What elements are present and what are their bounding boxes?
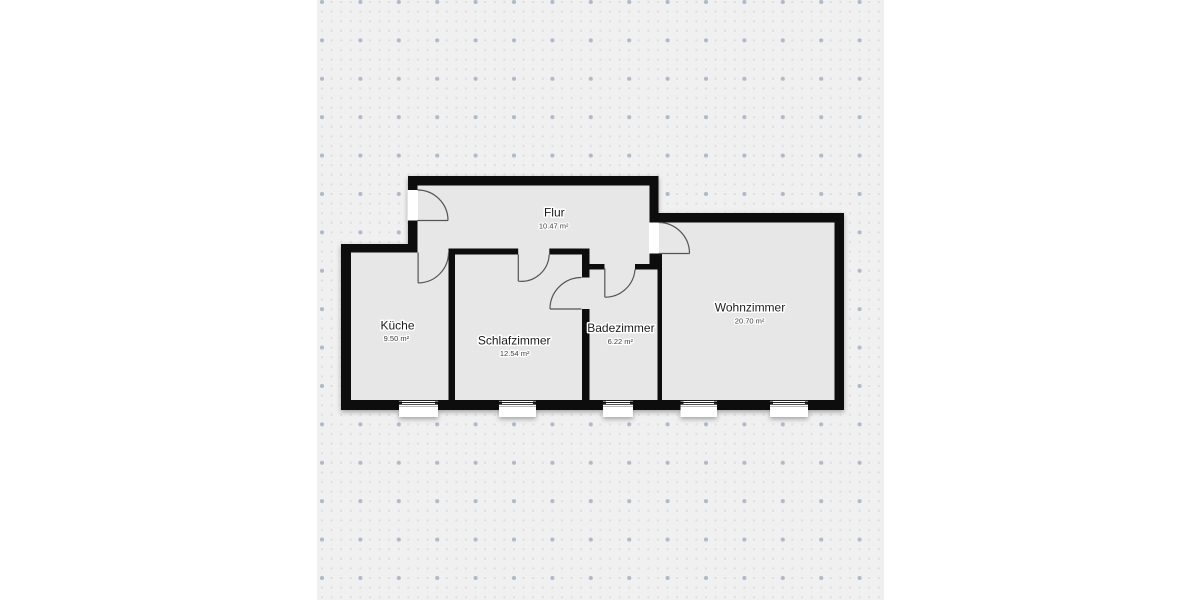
svg-text:9.50 m²: 9.50 m² — [384, 334, 410, 343]
svg-text:20.70 m²: 20.70 m² — [735, 316, 765, 325]
svg-text:Wohnzimmer: Wohnzimmer — [715, 300, 785, 314]
svg-text:Schlafzimmer: Schlafzimmer — [478, 334, 551, 348]
svg-text:Badezimmer: Badezimmer — [587, 321, 654, 335]
svg-text:10.47 m²: 10.47 m² — [539, 222, 569, 231]
svg-text:6.22 m²: 6.22 m² — [608, 337, 634, 346]
svg-text:Küche: Küche — [380, 319, 414, 333]
svg-text:Flur: Flur — [544, 206, 565, 220]
svg-text:12.54 m²: 12.54 m² — [500, 349, 530, 358]
